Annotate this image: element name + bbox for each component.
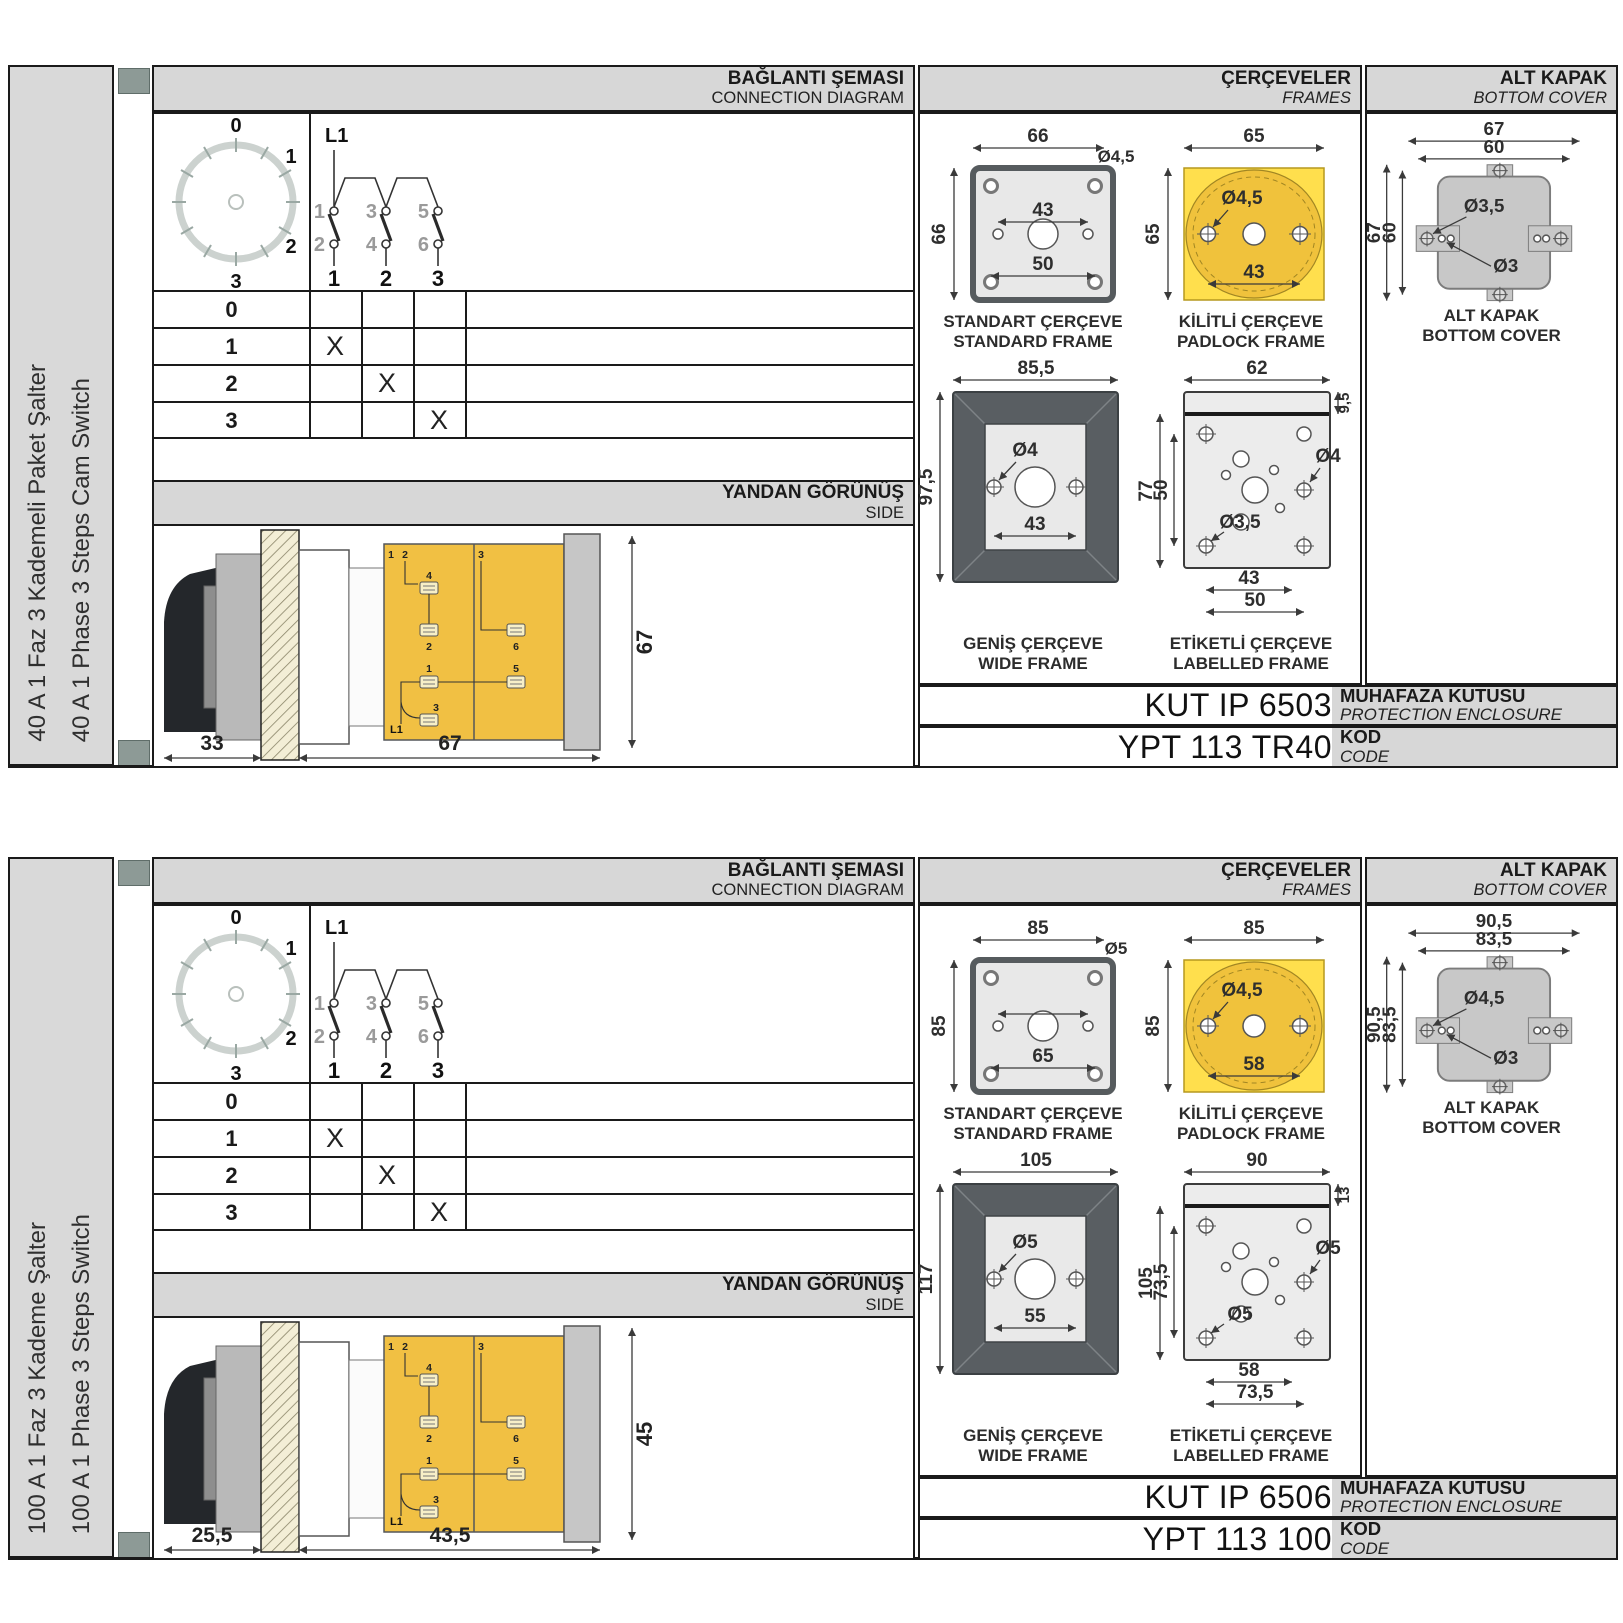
- x-mark: [361, 1195, 413, 1230]
- dim-hole-spacing: 55: [1024, 1306, 1046, 1327]
- dim-height: 45: [632, 1422, 657, 1446]
- dim-hole-spacing: 43: [1032, 200, 1053, 221]
- side-view-title-en: SIDE: [865, 1296, 904, 1314]
- dim-body-depth: 67: [438, 732, 461, 755]
- side-view-header: YANDAN GÖRÜNÜŞ SIDE: [154, 480, 913, 526]
- dial-position-0: 0: [230, 115, 241, 137]
- dim-height: 66: [929, 223, 950, 244]
- dia-callout: Ø3,5: [1464, 195, 1505, 216]
- output-2: 2: [380, 1058, 392, 1083]
- tab-strip: [116, 65, 152, 768]
- side-view-title-tr: YANDAN GÖRÜNÜŞ: [722, 483, 904, 504]
- contact-5: 5: [418, 201, 429, 223]
- frame-caption: STANDART ÇERÇEVE STANDARD FRAME: [928, 1104, 1138, 1145]
- terminal-label: 3: [433, 702, 439, 714]
- output-3: 3: [432, 1058, 444, 1083]
- side-view-title-en: SIDE: [865, 504, 904, 522]
- caption-tr: GENİŞ ÇERÇEVE: [928, 1426, 1138, 1446]
- frame-caption: ETİKETLİ ÇERÇEVE LABELLED FRAME: [1144, 634, 1358, 675]
- terminal-label: 3: [433, 1494, 439, 1506]
- dim-front-depth: 25,5: [192, 1524, 233, 1547]
- dial-position-1: 1: [285, 938, 296, 960]
- bottom-cover-header: ALT KAPAK BOTTOM COVER: [1365, 65, 1618, 112]
- enclosure-code-row: KUT IP 6506 MUHAFAZA KUTUSU PROTECTION E…: [918, 1477, 1618, 1518]
- dim-hole-spacing: 43: [1024, 514, 1045, 535]
- output-1: 1: [328, 266, 340, 291]
- dial-position-2: 2: [285, 1028, 296, 1050]
- connection-diagram-panel: 0 1 2 3 L1 1 2 3 4 5 6 1 2 3: [152, 904, 915, 1560]
- selector-dial-drawing: 0 1 2 3: [154, 114, 309, 290]
- code-label: KOD CODE: [1332, 728, 1616, 766]
- dim-screw-spacing: 50: [1244, 590, 1265, 611]
- terminal-label: 3: [478, 1341, 484, 1353]
- label-tr: MUHAFAZA KUTUSU: [1340, 1478, 1608, 1498]
- dim-hole-spacing: 43: [1243, 262, 1264, 283]
- side-view-drawing: 1 2 3 4 2 6 1 5 3 L1 45 25,5: [154, 1318, 913, 1558]
- tab-marker-bottom: [118, 740, 150, 766]
- dim-hole-spacing: 43: [1238, 568, 1259, 589]
- terminal-label: 1: [426, 1455, 432, 1467]
- caption-en: LABELLED FRAME: [1144, 654, 1358, 674]
- caption-tr: KİLİTLİ ÇERÇEVE: [1144, 1104, 1358, 1124]
- terminal-label: 1: [388, 1341, 394, 1353]
- contact-4: 4: [366, 1026, 378, 1048]
- product-code-row: YPT 113 TR40 KOD CODE: [918, 726, 1618, 768]
- product-title-english: 40 A 1 Phase 3 Steps Cam Switch: [68, 378, 96, 742]
- terminal-label: 6: [513, 641, 519, 653]
- frame-caption: GENİŞ ÇERÇEVE WIDE FRAME: [928, 634, 1138, 675]
- label-en: PROTECTION ENCLOSURE: [1340, 706, 1608, 725]
- dial-position-1: 1: [285, 146, 296, 168]
- label-en: CODE: [1340, 1540, 1608, 1559]
- caption-en: WIDE FRAME: [928, 1446, 1138, 1466]
- caption-tr: GENİŞ ÇERÇEVE: [928, 634, 1138, 654]
- label-tr: MUHAFAZA KUTUSU: [1340, 686, 1608, 706]
- dim-height: 67: [632, 630, 657, 654]
- dial-position-2: 2: [285, 236, 296, 258]
- label-tr: KOD: [1340, 1519, 1608, 1539]
- header-title-tr: BAĞLANTI ŞEMASI: [728, 69, 904, 90]
- dim-width: 85: [1027, 918, 1049, 939]
- product-code: YPT 113 100: [920, 1520, 1332, 1558]
- dim-strip: 9,5: [1336, 393, 1353, 414]
- caption-tr: ETİKETLİ ÇERÇEVE: [1144, 634, 1358, 654]
- wide-frame-drawing: 105 Ø5 55 117: [928, 1154, 1138, 1394]
- caption-en: BOTTOM COVER: [1367, 326, 1616, 346]
- product-section: 100 A 1 Faz 3 Kademe Şalter 100 A 1 Phas…: [0, 857, 1623, 1560]
- enclosure-label: MUHAFAZA KUTUSU PROTECTION ENCLOSURE: [1332, 1479, 1616, 1516]
- tab-marker-top: [118, 860, 150, 886]
- caption-tr: STANDART ÇERÇEVE: [928, 1104, 1138, 1124]
- dia-callout: Ø4,5: [1464, 987, 1505, 1008]
- dim-width: 90: [1246, 1150, 1267, 1171]
- contact-1: 1: [314, 201, 325, 223]
- contact-4: 4: [366, 234, 378, 256]
- terminal-label: 3: [478, 549, 484, 561]
- caption-tr: ETİKETLİ ÇERÇEVE: [1144, 1426, 1358, 1446]
- x-mark: [309, 366, 361, 401]
- dim-inner-height: 50: [1151, 479, 1172, 500]
- frame-caption: GENİŞ ÇERÇEVE WIDE FRAME: [928, 1426, 1138, 1467]
- frames-header: ÇERÇEVELER FRAMES: [918, 65, 1362, 112]
- enclosure-code-row: KUT IP 6503 MUHAFAZA KUTUSU PROTECTION E…: [918, 685, 1618, 726]
- x-mark: [413, 1121, 465, 1156]
- connection-diagram-header: BAĞLANTI ŞEMASI CONNECTION DIAGRAM: [152, 857, 915, 904]
- terminal-label: 2: [402, 549, 408, 561]
- code-label: KOD CODE: [1332, 1520, 1616, 1558]
- x-mark: X: [309, 1121, 361, 1156]
- frames-panel: 85 Ø5 65 85 STANDART ÇERÇEVE STANDARD FR…: [918, 904, 1362, 1477]
- x-mark: [361, 1084, 413, 1119]
- x-mark: [361, 329, 413, 364]
- dim-height: 85: [1143, 1015, 1164, 1037]
- catalog-page: 40 A 1 Faz 3 Kademeli Paket Şalter 40 A …: [0, 0, 1623, 1623]
- dia-callout: Ø5: [1315, 1238, 1341, 1259]
- x-mark: [413, 366, 465, 401]
- enclosure-code: KUT IP 6503: [920, 687, 1332, 724]
- x-mark: [361, 1121, 413, 1156]
- frames-header: ÇERÇEVELER FRAMES: [918, 857, 1362, 904]
- labelled-frame-drawing: 62 9,5 77 50 Ø4 Ø3,5 43 50: [1144, 362, 1358, 630]
- dim-inner-height: 60: [1379, 222, 1400, 243]
- table-row-label: 2: [154, 366, 309, 401]
- frames-panel: 66 Ø4,5 43 50 66 STANDART ÇERÇEVE STANDA…: [918, 112, 1362, 685]
- tab-marker-top: [118, 68, 150, 94]
- x-mark: X: [413, 1195, 465, 1230]
- table-row-label: 1: [154, 329, 309, 364]
- dia-callout: Ø5: [1012, 1232, 1038, 1253]
- terminal-label: 4: [426, 570, 432, 582]
- dia-callout: Ø5: [1105, 939, 1128, 958]
- caption-en: LABELLED FRAME: [1144, 1446, 1358, 1466]
- dim-inner-height: 73,5: [1151, 1263, 1172, 1300]
- selector-dial-drawing: 0 1 2 3: [154, 906, 309, 1082]
- dim-screw-spacing: 65: [1032, 1046, 1054, 1067]
- x-mark: [413, 1084, 465, 1119]
- dim-front-depth: 33: [200, 732, 223, 755]
- terminal-label: 6: [513, 1433, 519, 1445]
- contact-5: 5: [418, 993, 429, 1015]
- bottom-cover-drawing: 90,5 83,5 90,5 83,5 Ø4,5 Ø3: [1367, 912, 1616, 1096]
- bottom-cover-header: ALT KAPAK BOTTOM COVER: [1365, 857, 1618, 904]
- output-3: 3: [432, 266, 444, 291]
- cover-caption: ALT KAPAK BOTTOM COVER: [1367, 306, 1616, 347]
- wide-frame-drawing: 85,5 Ø4 43 97,5: [928, 362, 1138, 602]
- x-mark: [309, 292, 361, 327]
- caption-tr: ALT KAPAK: [1367, 306, 1616, 326]
- caption-en: PADLOCK FRAME: [1144, 1124, 1358, 1144]
- table-row-label: 0: [154, 292, 309, 327]
- contact-2: 2: [314, 1026, 325, 1048]
- switch-schematic-drawing: L1 1 2 3 4 5 6 1 2 3: [311, 906, 911, 1082]
- enclosure-label: MUHAFAZA KUTUSU PROTECTION ENCLOSURE: [1332, 687, 1616, 724]
- side-view-title-tr: YANDAN GÖRÜNÜŞ: [722, 1275, 904, 1296]
- table-row-label: 3: [154, 1195, 309, 1230]
- connection-diagram-header: BAĞLANTI ŞEMASI CONNECTION DIAGRAM: [152, 65, 915, 112]
- frame-caption: STANDART ÇERÇEVE STANDARD FRAME: [928, 312, 1138, 353]
- table-row-label: 3: [154, 403, 309, 438]
- dim-width: 65: [1243, 126, 1265, 147]
- terminal-label: 1: [388, 549, 394, 561]
- terminal-label: 2: [426, 1433, 432, 1445]
- dia-callout: Ø5: [1227, 1304, 1253, 1325]
- dia-callout: Ø3,5: [1219, 512, 1261, 533]
- product-title-turkish: 40 A 1 Faz 3 Kademeli Paket Şalter: [24, 364, 52, 742]
- caption-tr: KİLİTLİ ÇERÇEVE: [1144, 312, 1358, 332]
- bottom-cover-panel: 90,5 83,5 90,5 83,5 Ø4,5 Ø3 ALT KAP: [1365, 904, 1618, 1477]
- output-2: 2: [380, 266, 392, 291]
- x-mark: [309, 1084, 361, 1119]
- dia-callout: Ø4,5: [1221, 188, 1263, 209]
- x-mark: [413, 292, 465, 327]
- dim-hole-spacing: 58: [1243, 1054, 1264, 1075]
- padlock-frame-drawing: 85 Ø4,5 58 85: [1144, 918, 1358, 1102]
- dim-height: 65: [1143, 223, 1164, 245]
- side-view-drawing: 1 2 3 4 2 6 1 5 3 L1 67 33 67: [154, 526, 913, 766]
- dim-screw-spacing: 50: [1032, 254, 1053, 275]
- dia-callout: Ø3: [1493, 255, 1518, 276]
- header-title-en: CONNECTION DIAGRAM: [711, 882, 904, 900]
- bottom-cover-drawing: 67 60 67 60 Ø3,5 Ø3: [1367, 120, 1616, 304]
- phase-label: L1: [390, 1516, 403, 1528]
- product-section: 40 A 1 Faz 3 Kademeli Paket Şalter 40 A …: [0, 65, 1623, 768]
- x-mark: [413, 329, 465, 364]
- mounting-panel-hatch: [261, 530, 299, 760]
- dim-screw-spacing: 73,5: [1237, 1382, 1274, 1403]
- dim-width: 85,5: [1018, 358, 1055, 379]
- product-sidebar: 40 A 1 Faz 3 Kademeli Paket Şalter 40 A …: [8, 65, 114, 766]
- table-divider: [465, 1082, 467, 1231]
- dia-callout: Ø4,5: [1098, 147, 1135, 166]
- terminal-label: 5: [513, 1455, 519, 1467]
- mounting-panel-hatch: [261, 1322, 299, 1552]
- dial-position-0: 0: [230, 907, 241, 929]
- label-en: PROTECTION ENCLOSURE: [1340, 1498, 1608, 1517]
- padlock-frame-drawing: 65 Ø4,5 43 65: [1144, 126, 1358, 310]
- labelled-frame-drawing: 90 13 105 73,5 Ø5 Ø5 58 73,5: [1144, 1154, 1358, 1422]
- caption-en: BOTTOM COVER: [1367, 1118, 1616, 1138]
- caption-en: WIDE FRAME: [928, 654, 1138, 674]
- dia-callout: Ø4,5: [1221, 980, 1263, 1001]
- header-title-en: FRAMES: [1282, 90, 1351, 108]
- header-title-en: BOTTOM COVER: [1473, 882, 1607, 900]
- contact-1: 1: [314, 993, 325, 1015]
- x-mark: X: [361, 366, 413, 401]
- dim-inner-width: 60: [1484, 136, 1505, 157]
- header-title-tr: BAĞLANTI ŞEMASI: [728, 861, 904, 882]
- x-mark: X: [413, 403, 465, 438]
- dim-width: 105: [1020, 1150, 1052, 1171]
- x-mark: X: [309, 329, 361, 364]
- caption-en: STANDARD FRAME: [928, 1124, 1138, 1144]
- table-row-label: 0: [154, 1084, 309, 1119]
- dim-width: 66: [1027, 126, 1048, 147]
- product-title-turkish: 100 A 1 Faz 3 Kademe Şalter: [24, 1222, 52, 1534]
- contact-6: 6: [418, 1026, 429, 1048]
- x-mark: [309, 1195, 361, 1230]
- table-row-label: 2: [154, 1158, 309, 1193]
- terminal-label: 5: [513, 663, 519, 675]
- output-1: 1: [328, 1058, 340, 1083]
- dim-inner-width: 83,5: [1476, 928, 1512, 949]
- contact-6: 6: [418, 234, 429, 256]
- caption-tr: STANDART ÇERÇEVE: [928, 312, 1138, 332]
- caption-tr: ALT KAPAK: [1367, 1098, 1616, 1118]
- tab-strip: [116, 857, 152, 1560]
- terminal-label: 2: [402, 1341, 408, 1353]
- contact-2: 2: [314, 234, 325, 256]
- dim-height: 85: [929, 1015, 950, 1037]
- product-code-row: YPT 113 100 KOD CODE: [918, 1518, 1618, 1560]
- dim-height: 97,5: [916, 468, 937, 505]
- header-title-tr: ALT KAPAK: [1500, 69, 1607, 90]
- x-mark: X: [361, 1158, 413, 1193]
- switch-schematic-drawing: L1 1 2 3 4 5 6 1 2 3: [311, 114, 911, 290]
- dia-callout: Ø4: [1012, 440, 1038, 461]
- label-en: CODE: [1340, 748, 1608, 767]
- dim-strip: 13: [1336, 1187, 1353, 1204]
- contact-3: 3: [366, 993, 377, 1015]
- terminal-label: 4: [426, 1362, 432, 1374]
- phase-label: L1: [325, 125, 348, 147]
- standard-frame-drawing: 66 Ø4,5 43 50 66: [928, 126, 1138, 310]
- x-mark: [309, 403, 361, 438]
- label-tr: KOD: [1340, 727, 1608, 747]
- dia-callout: Ø4: [1315, 446, 1341, 467]
- header-title-tr: ÇERÇEVELER: [1221, 861, 1351, 882]
- caption-en: PADLOCK FRAME: [1144, 332, 1358, 352]
- product-sidebar: 100 A 1 Faz 3 Kademe Şalter 100 A 1 Phas…: [8, 857, 114, 1558]
- dia-callout: Ø3: [1493, 1047, 1518, 1068]
- dim-inner-height: 83,5: [1379, 1006, 1400, 1042]
- dim-width: 62: [1246, 358, 1267, 379]
- dim-body-depth: 43,5: [430, 1524, 471, 1547]
- x-mark: [413, 1158, 465, 1193]
- header-title-en: FRAMES: [1282, 882, 1351, 900]
- rear-plate: [564, 534, 600, 750]
- side-view-header: YANDAN GÖRÜNÜŞ SIDE: [154, 1272, 913, 1318]
- product-code: YPT 113 TR40: [920, 728, 1332, 766]
- x-mark: [361, 403, 413, 438]
- contact-3: 3: [366, 201, 377, 223]
- header-title-en: BOTTOM COVER: [1473, 90, 1607, 108]
- header-title-tr: ÇERÇEVELER: [1221, 69, 1351, 90]
- frame-caption: KİLİTLİ ÇERÇEVE PADLOCK FRAME: [1144, 312, 1358, 353]
- table-row-label: 1: [154, 1121, 309, 1156]
- frame-caption: ETİKETLİ ÇERÇEVE LABELLED FRAME: [1144, 1426, 1358, 1467]
- terminal-label: 2: [426, 641, 432, 653]
- x-mark: [361, 292, 413, 327]
- dim-width: 85: [1243, 918, 1265, 939]
- phase-label: L1: [325, 917, 348, 939]
- product-title-english: 100 A 1 Phase 3 Steps Switch: [68, 1214, 96, 1534]
- header-title-en: CONNECTION DIAGRAM: [711, 90, 904, 108]
- cover-caption: ALT KAPAK BOTTOM COVER: [1367, 1098, 1616, 1139]
- terminal-label: 1: [426, 663, 432, 675]
- caption-en: STANDARD FRAME: [928, 332, 1138, 352]
- bottom-cover-panel: 67 60 67 60 Ø3,5 Ø3 ALT KAPAK: [1365, 112, 1618, 685]
- enclosure-code: KUT IP 6506: [920, 1479, 1332, 1516]
- x-mark: [309, 1158, 361, 1193]
- dim-hole-spacing: 58: [1238, 1360, 1259, 1381]
- table-divider: [465, 290, 467, 439]
- tab-marker-bottom: [118, 1532, 150, 1558]
- standard-frame-drawing: 85 Ø5 65 85: [928, 918, 1138, 1102]
- phase-label: L1: [390, 724, 403, 736]
- dim-height: 117: [916, 1264, 937, 1295]
- header-title-tr: ALT KAPAK: [1500, 861, 1607, 882]
- connection-diagram-panel: 0 1 2 3 L1 1 2 3 4 5 6 1 2 3: [152, 112, 915, 768]
- rear-plate: [564, 1326, 600, 1542]
- frame-caption: KİLİTLİ ÇERÇEVE PADLOCK FRAME: [1144, 1104, 1358, 1145]
